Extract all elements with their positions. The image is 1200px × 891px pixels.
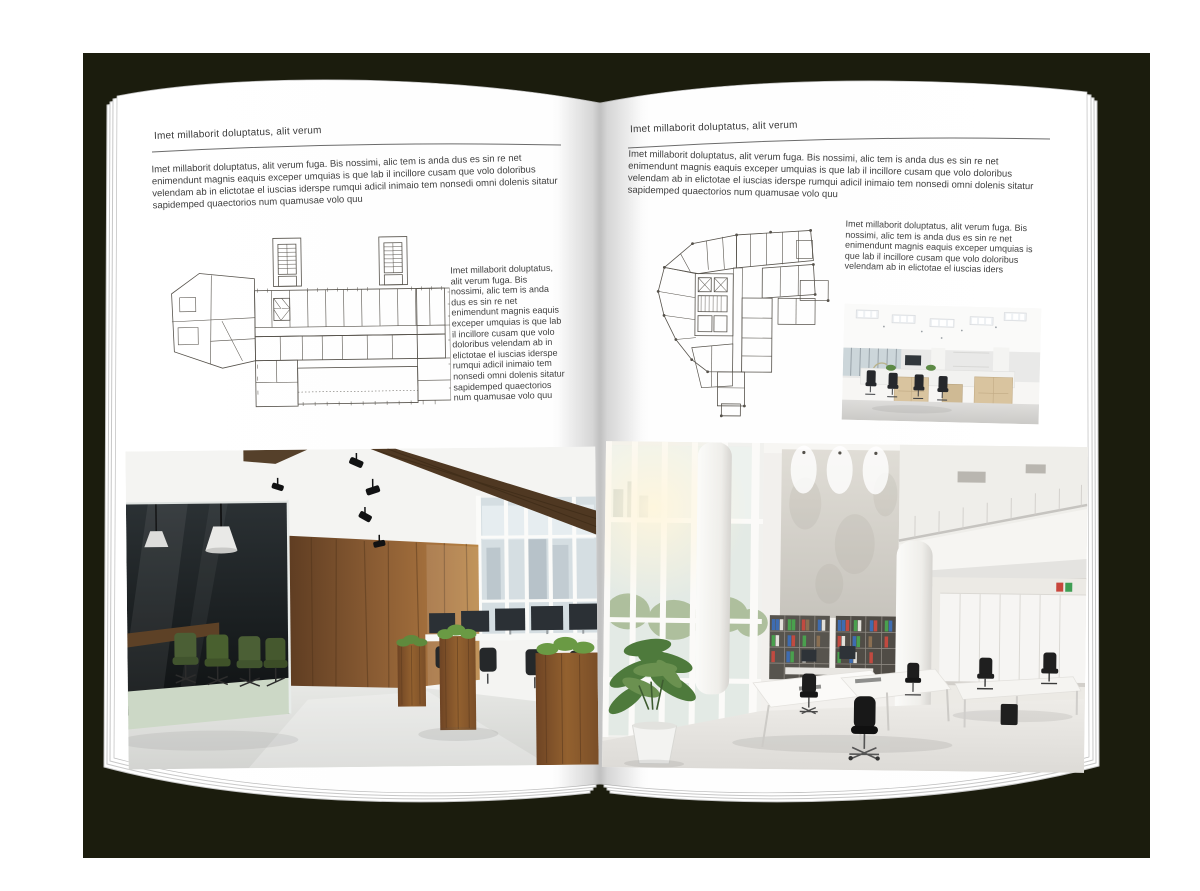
right-block <box>417 288 452 400</box>
south-rooms <box>691 344 745 416</box>
left-page-photo-office-wood-glass <box>125 447 598 770</box>
right-page-side-text: Imet millaborit doluptatus, alit verum f… <box>844 219 1041 277</box>
downlights <box>790 445 889 494</box>
wall-screen <box>905 355 921 365</box>
safety-sign-red <box>1056 583 1063 592</box>
white-column-right <box>895 541 933 727</box>
magazine-spread-mockup: Imet millaborit doluptatus, alit verum I… <box>0 0 1200 891</box>
right-header-rule <box>627 133 1051 151</box>
stair-towers <box>273 237 408 287</box>
right-page-photo-bright-office <box>602 441 1088 773</box>
left-page-side-text: Imet millaborit doluptatus, alit verum f… <box>450 263 566 404</box>
ceiling-lights <box>843 304 1041 353</box>
safety-sign-green <box>1065 583 1072 592</box>
white-column-left <box>695 442 732 694</box>
glass-meeting-room <box>126 500 290 730</box>
window-ticks <box>257 286 452 407</box>
lower-wing <box>256 358 419 406</box>
right-floor-plan <box>649 219 842 418</box>
left-annex <box>171 273 255 369</box>
right-page-intro-paragraph: Imet millaborit doluptatus, alit verum f… <box>628 149 1041 206</box>
core <box>695 274 733 336</box>
right-page-photo-small-office <box>842 304 1042 425</box>
left-floor-plan <box>161 230 452 418</box>
corridor-and-rooms <box>733 268 773 372</box>
waste-bin <box>1001 704 1018 725</box>
